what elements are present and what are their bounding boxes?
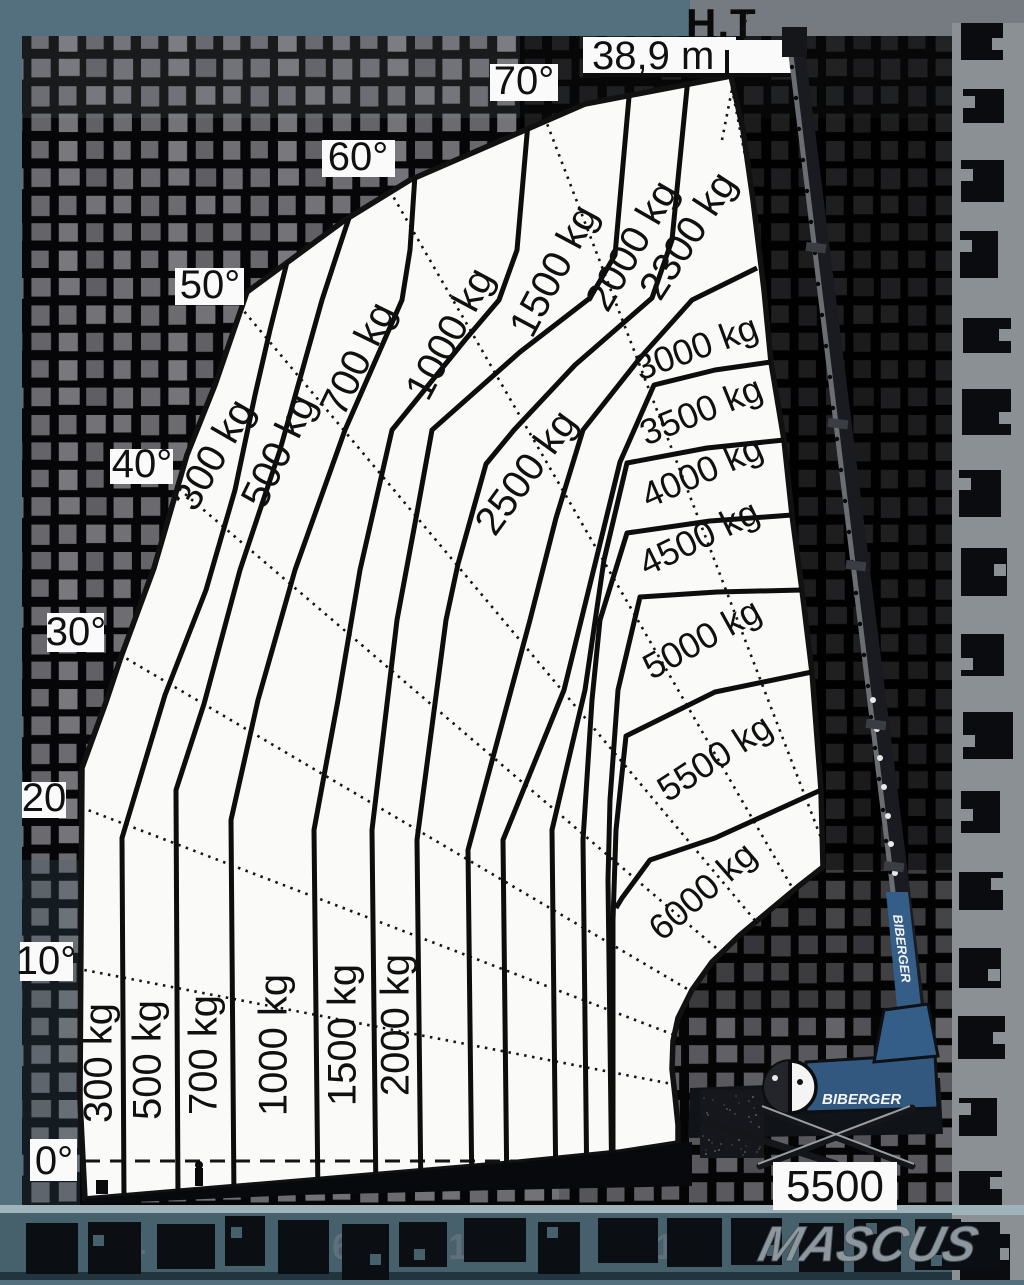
svg-text:60°: 60° (328, 135, 389, 179)
svg-text:300 kg: 300 kg (77, 1003, 121, 1123)
svg-text:30°: 30° (46, 610, 107, 654)
svg-text:5500: 5500 (786, 1162, 884, 1211)
svg-text:1000 kg: 1000 kg (252, 974, 296, 1116)
svg-text:50°: 50° (180, 263, 241, 307)
svg-text:500 kg: 500 kg (126, 1000, 170, 1120)
svg-text:0°: 0° (35, 1139, 73, 1183)
svg-text:MASCUS: MASCUS (753, 1216, 984, 1272)
svg-text:1500 kg: 1500 kg (321, 964, 365, 1106)
svg-text:700 kg: 700 kg (182, 995, 226, 1115)
svg-text:70°: 70° (494, 59, 555, 103)
svg-text:BIBERGER: BIBERGER (822, 1091, 901, 1108)
svg-text:38,9 m: 38,9 m (592, 34, 714, 78)
svg-text:2000 kg: 2000 kg (374, 954, 418, 1096)
svg-text:10°: 10° (16, 939, 77, 983)
svg-text:40°: 40° (112, 442, 173, 486)
svg-text:20: 20 (22, 776, 67, 820)
